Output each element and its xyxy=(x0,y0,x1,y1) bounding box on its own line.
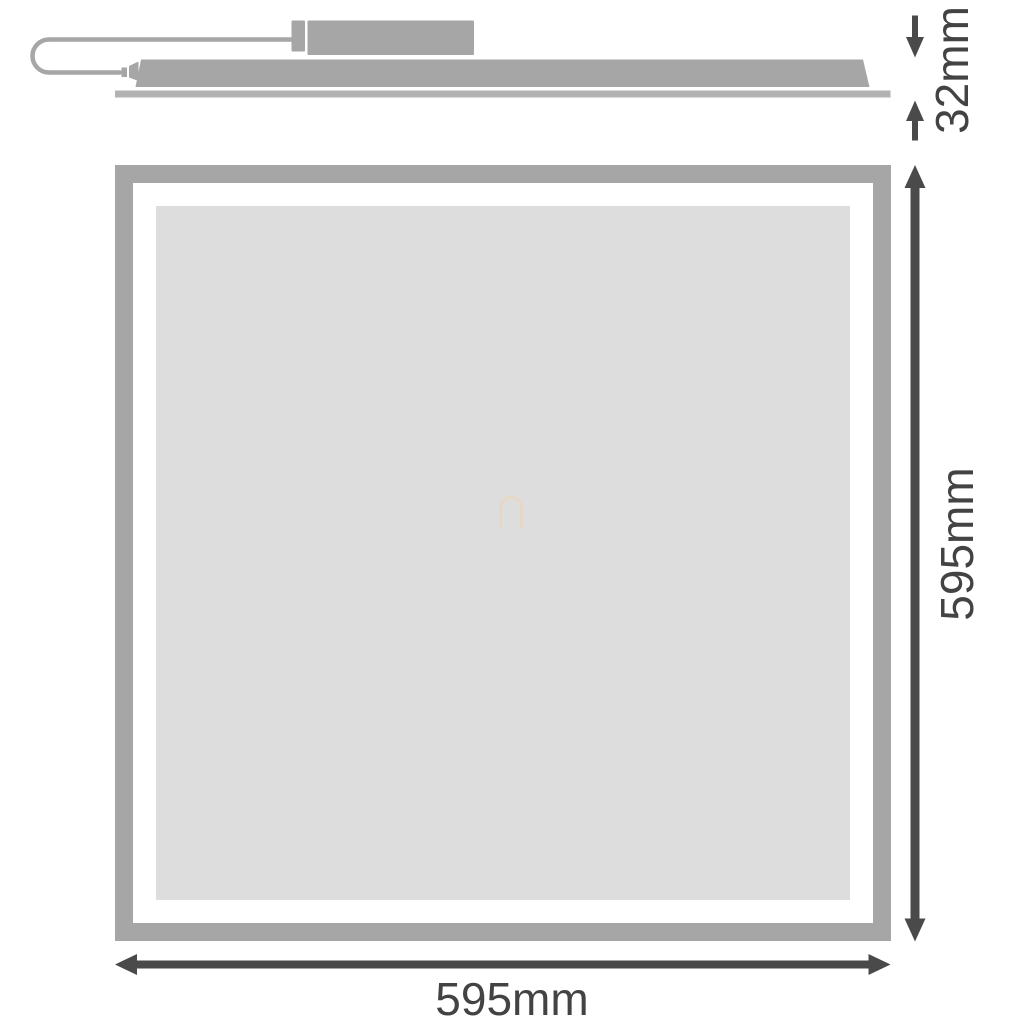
cable-plug xyxy=(129,62,139,82)
panel-light-surface xyxy=(156,206,850,900)
dimension-label-width: 595mm xyxy=(412,973,612,1025)
thickness-arrow-down-head xyxy=(906,37,924,58)
panel-side-body xyxy=(136,60,870,88)
height-arrow-bottom-head xyxy=(905,919,926,942)
width-dimension-line xyxy=(115,954,891,975)
height-arrow-top-head xyxy=(905,165,926,188)
width-arrow-left-head xyxy=(115,954,137,975)
height-dimension-line xyxy=(905,165,926,942)
panel-frame-inner-gap xyxy=(133,183,873,923)
watermark-arch-icon xyxy=(499,496,523,528)
driver-terminal-box xyxy=(292,21,306,52)
dimension-label-thickness: 32mm xyxy=(926,0,978,170)
thickness-dimension-arrows xyxy=(906,16,924,141)
led-driver-box xyxy=(308,21,475,56)
width-arrow-right-head xyxy=(869,954,891,975)
panel-front-view xyxy=(115,165,891,941)
panel-side-view xyxy=(33,21,891,98)
thickness-arrow-up-head xyxy=(906,101,924,122)
diagram-canvas: 32mm 595mm 595mm xyxy=(0,0,1024,1024)
panel-side-flange xyxy=(115,91,891,98)
dimension-label-height: 595mm xyxy=(931,444,983,644)
cable-ferrule xyxy=(122,68,128,78)
